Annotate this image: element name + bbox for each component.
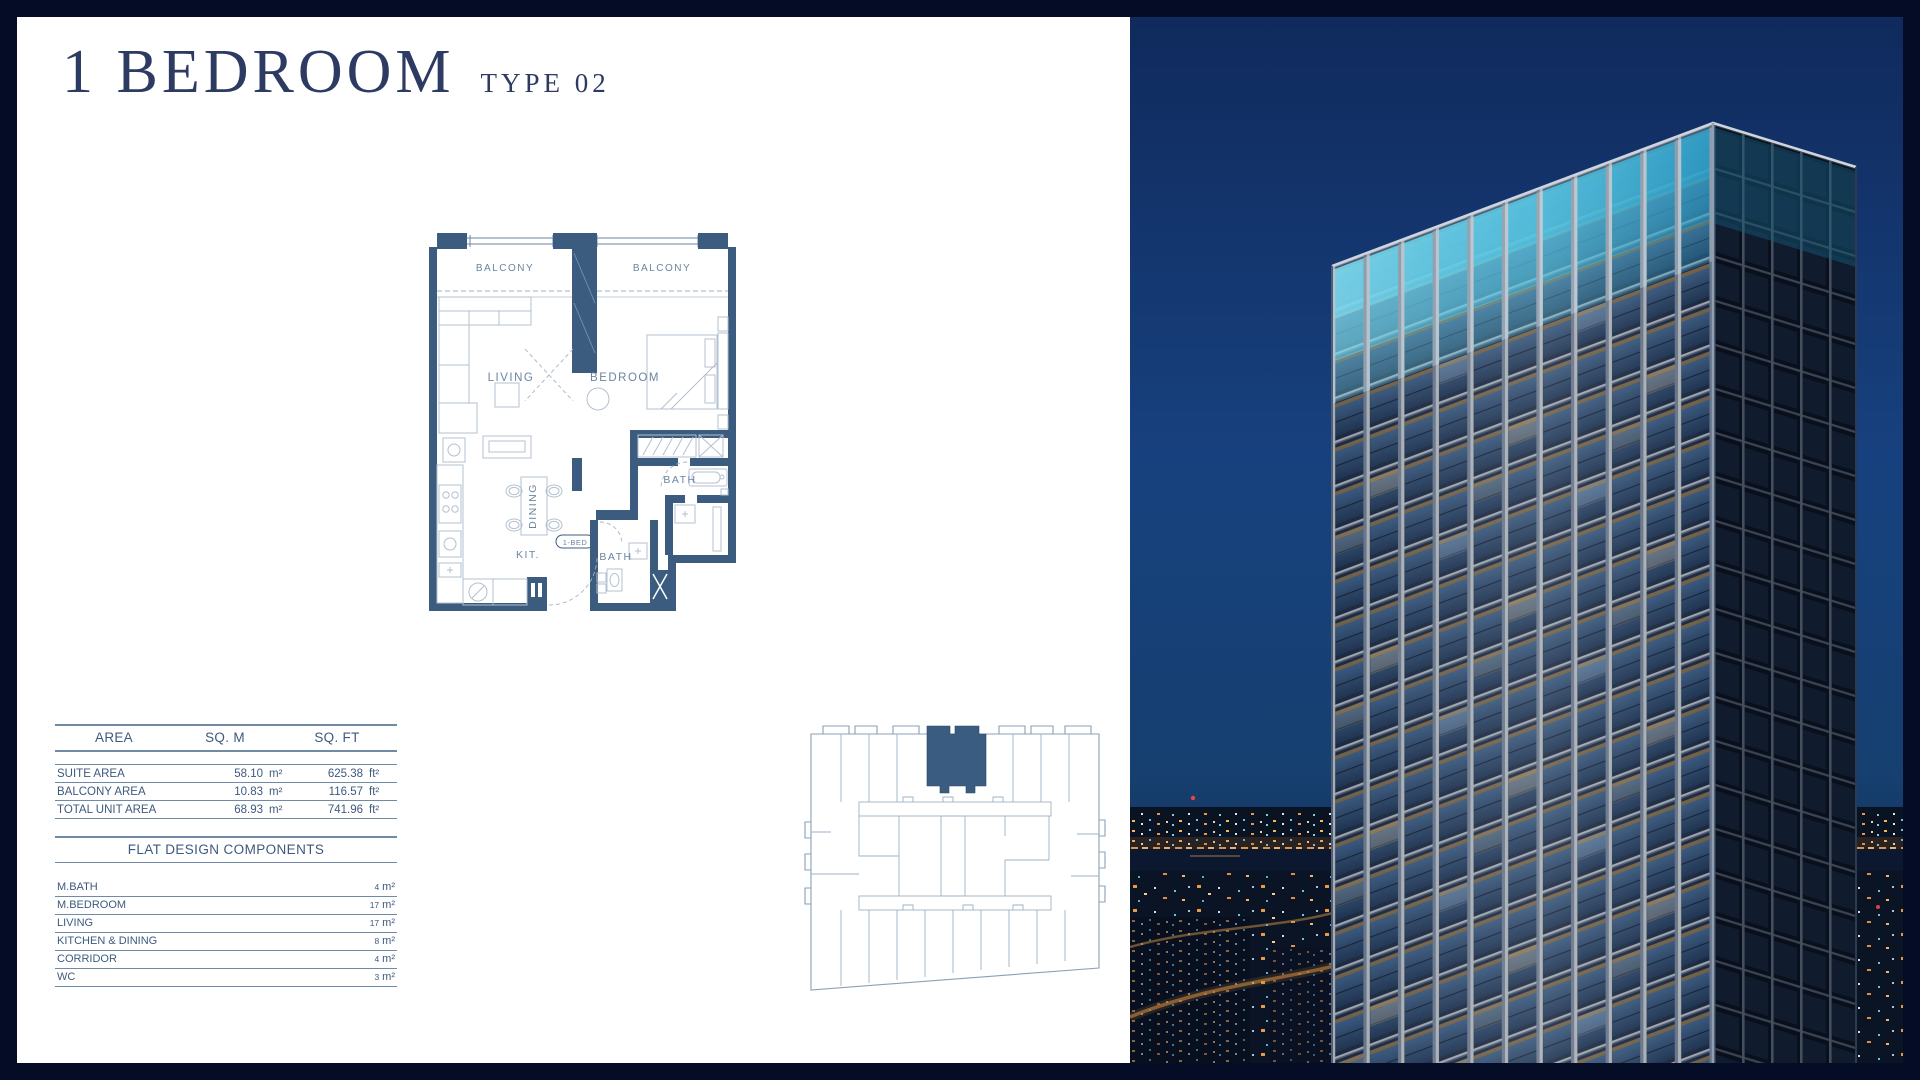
row-sqft: 625.38 bbox=[299, 768, 363, 780]
row-label: SUITE AREA bbox=[57, 768, 207, 780]
row-sqm: 68.93 bbox=[207, 804, 263, 816]
row-value: 4 bbox=[374, 954, 379, 964]
row-unit: m² bbox=[382, 917, 395, 929]
key-plan bbox=[803, 722, 1107, 1008]
table-row: KITCHEN & DINING 8m² bbox=[55, 933, 397, 951]
row-unit: m² bbox=[382, 881, 395, 893]
table-row: WC 3m² bbox=[55, 969, 397, 987]
table-row: CORRIDOR 4m² bbox=[55, 951, 397, 969]
row-label: TOTAL UNIT AREA bbox=[57, 804, 207, 816]
living-label: LIVING bbox=[488, 372, 535, 384]
col-sqft: SQ. FT bbox=[277, 730, 397, 745]
walls bbox=[429, 233, 736, 611]
col-area: AREA bbox=[55, 730, 173, 745]
highlighted-unit bbox=[927, 726, 986, 793]
unit-tag-label: 1-BED bbox=[563, 538, 588, 547]
row-label: M.BATH bbox=[57, 881, 98, 893]
row-label: M.BEDROOM bbox=[57, 899, 126, 911]
table-row: SUITE AREA 58.10 m² 625.38 ft² bbox=[55, 765, 397, 783]
floorplan-drawing: BALCONY BALCONY LIVING BEDROOM DINING KI… bbox=[425, 233, 740, 613]
row-sqm-unit: m² bbox=[263, 786, 299, 798]
row-value: 17 bbox=[370, 900, 379, 910]
dining-label: DINING bbox=[527, 483, 539, 529]
row-sqft-unit: ft² bbox=[363, 804, 395, 816]
area-table-gap bbox=[55, 752, 397, 765]
row-sqm: 58.10 bbox=[207, 768, 263, 780]
building-photo bbox=[1130, 17, 1903, 1063]
row-unit: m² bbox=[382, 935, 395, 947]
flat-design-components-table: FLAT DESIGN COMPONENTS M.BATH 4m² M.BEDR… bbox=[55, 836, 397, 987]
col-sqm: SQ. M bbox=[173, 730, 277, 745]
balcony-right-label: BALCONY bbox=[633, 263, 691, 274]
row-label: WC bbox=[57, 971, 75, 983]
row-value: 17 bbox=[370, 918, 379, 928]
row-label: KITCHEN & DINING bbox=[57, 935, 157, 947]
table-row: TOTAL UNIT AREA 68.93 m² 741.96 ft² bbox=[55, 801, 397, 819]
row-value: 4 bbox=[374, 882, 379, 892]
tower-right-face bbox=[1713, 123, 1856, 1063]
balcony-left-label: BALCONY bbox=[476, 263, 534, 274]
area-summary-table: AREA SQ. M SQ. FT SUITE AREA 58.10 m² 62… bbox=[55, 724, 397, 819]
brochure-page: 1 BEDROOM TYPE 02 bbox=[0, 0, 1920, 1080]
table-row: BALCONY AREA 10.83 m² 116.57 ft² bbox=[55, 783, 397, 801]
row-sqft: 741.96 bbox=[299, 804, 363, 816]
table-row: LIVING 17m² bbox=[55, 915, 397, 933]
row-sqm-unit: m² bbox=[263, 768, 299, 780]
row-sqm-unit: m² bbox=[263, 804, 299, 816]
row-sqft-unit: ft² bbox=[363, 786, 395, 798]
components-title: FLAT DESIGN COMPONENTS bbox=[55, 836, 397, 863]
row-value: 3 bbox=[374, 972, 379, 982]
row-label: BALCONY AREA bbox=[57, 786, 207, 798]
unit-type-title: 1 BEDROOM bbox=[62, 38, 455, 106]
row-unit: m² bbox=[382, 953, 395, 965]
kitchen-label: KIT. bbox=[516, 549, 540, 561]
bath-master-label: BATH bbox=[663, 474, 696, 486]
page-title: 1 BEDROOM TYPE 02 bbox=[62, 38, 610, 106]
row-unit: m² bbox=[382, 971, 395, 983]
table-row: M.BATH 4m² bbox=[55, 879, 397, 897]
row-sqft: 116.57 bbox=[299, 786, 363, 798]
row-sqm: 10.83 bbox=[207, 786, 263, 798]
tower-front-face bbox=[1332, 123, 1713, 1063]
table-row: M.BEDROOM 17m² bbox=[55, 897, 397, 915]
row-label: CORRIDOR bbox=[57, 953, 117, 965]
row-sqft-unit: ft² bbox=[363, 768, 395, 780]
area-table-header: AREA SQ. M SQ. FT bbox=[55, 724, 397, 752]
row-label: LIVING bbox=[57, 917, 93, 929]
row-unit: m² bbox=[382, 899, 395, 911]
bedroom-label: BEDROOM bbox=[590, 372, 660, 384]
unit-type-variant: TYPE 02 bbox=[481, 68, 610, 99]
bath-guest-label: BATH bbox=[599, 551, 632, 563]
components-gap bbox=[55, 863, 397, 879]
row-value: 8 bbox=[374, 936, 379, 946]
